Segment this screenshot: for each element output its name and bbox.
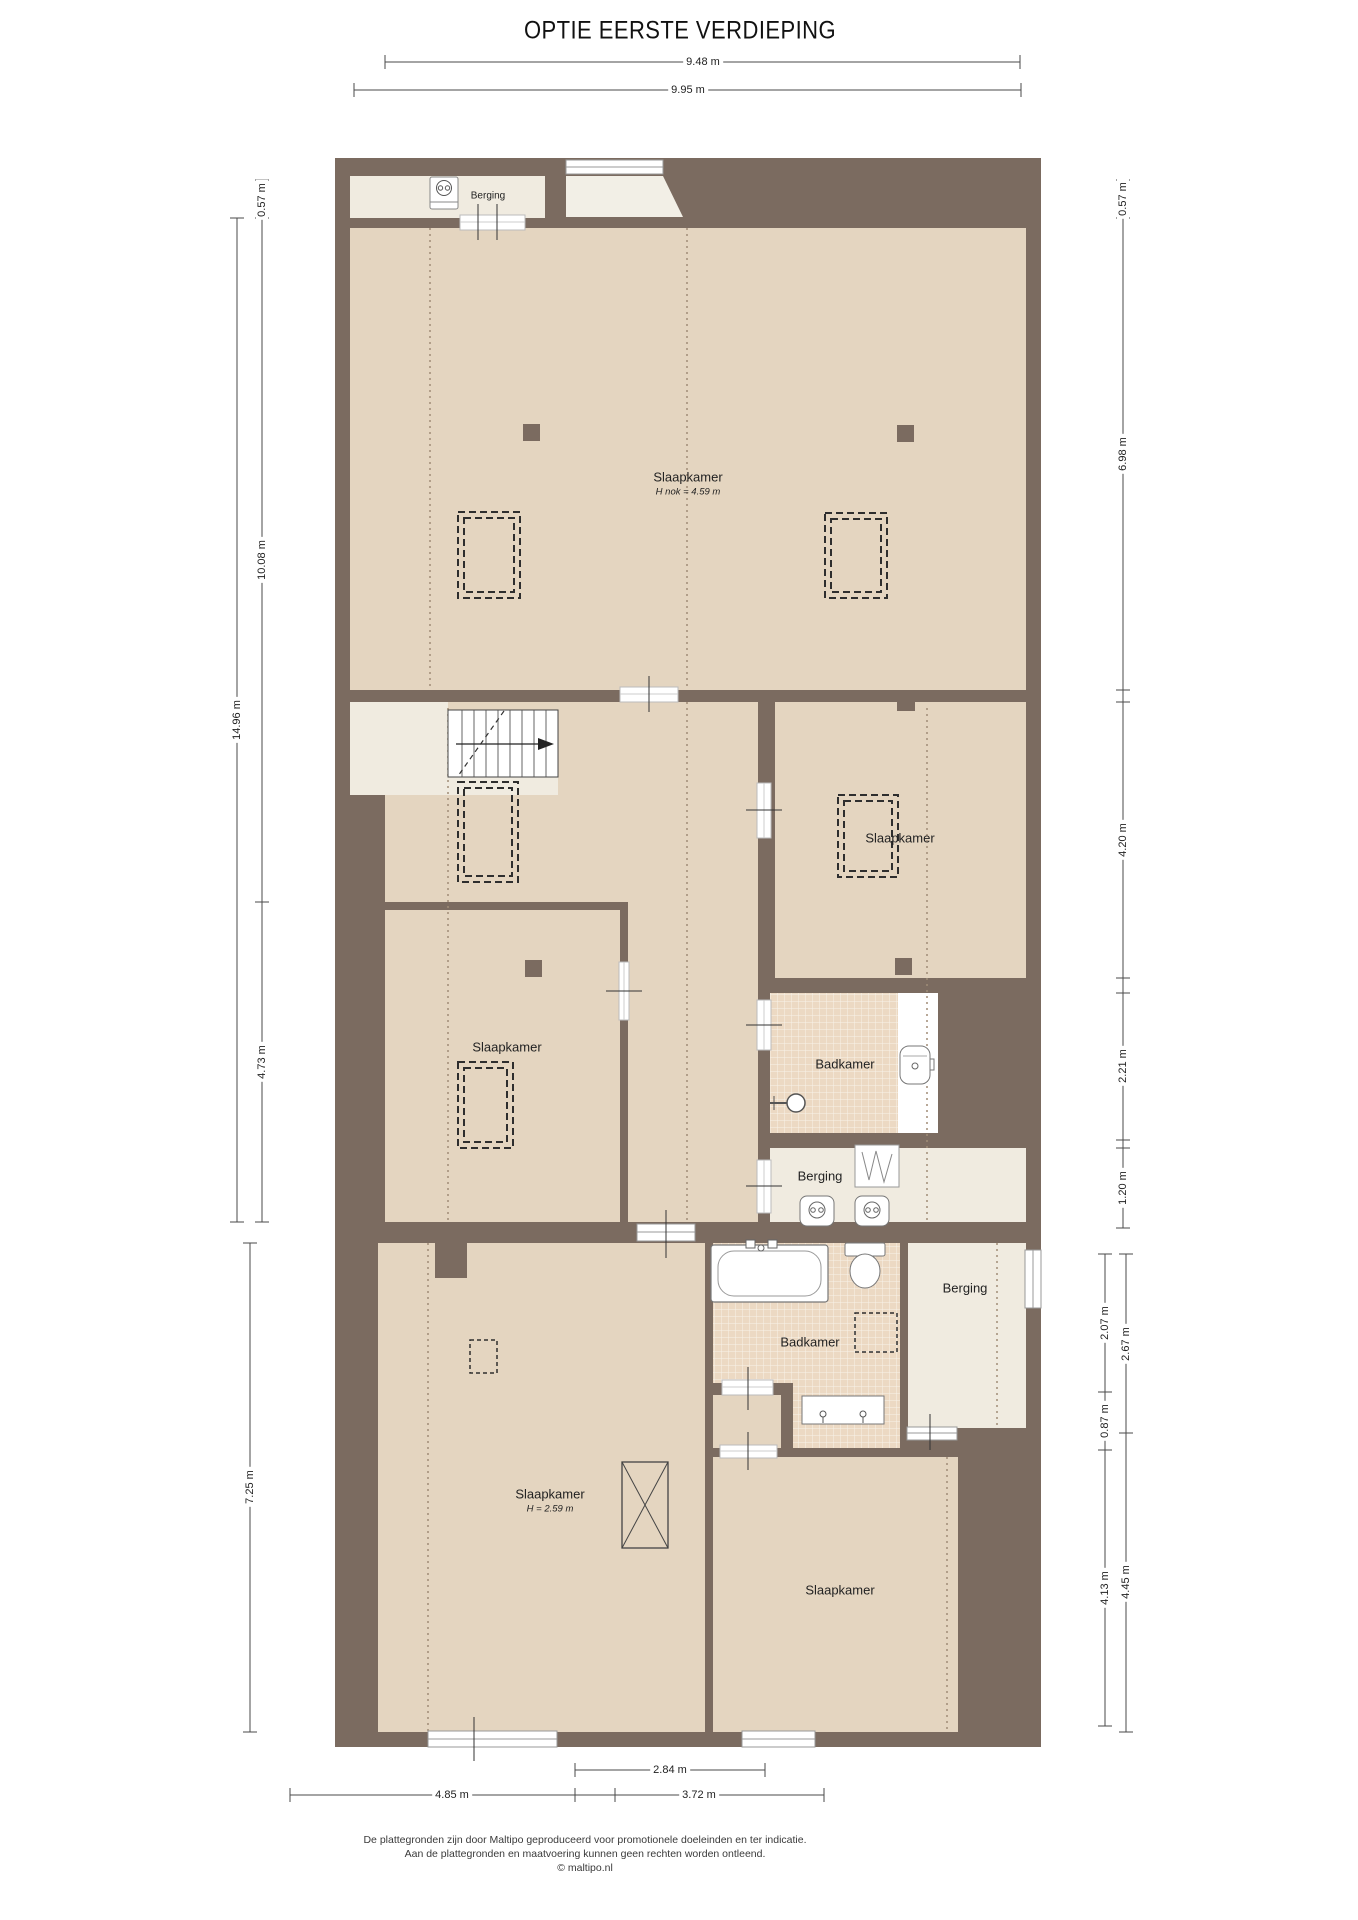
room-label-badkamer-bottom: Badkamer (780, 1335, 839, 1350)
dim-bottom-left: 4.85 m (432, 1789, 472, 1801)
dim-right-bath: 2.21 m (1117, 1046, 1129, 1086)
dim-left-bottom: 7.25 m (244, 1467, 256, 1507)
footer-line-2: Aan de plattegronden en maatvoering kunn… (405, 1848, 766, 1860)
dim-right-267: 2.67 m (1120, 1324, 1132, 1364)
plan-title: OPTIE EERSTE VERDIEPING (524, 17, 836, 46)
room-label-slaapkamer-main: Slaapkamer (653, 470, 722, 485)
stairs-up-icon (448, 710, 558, 777)
dim-right-berging: 1.20 m (1117, 1168, 1129, 1208)
bathtub-icon (711, 1240, 828, 1302)
dim-top-inner: 9.48 m (683, 56, 723, 68)
dim-right-main: 6.98 m (1117, 434, 1129, 474)
room-label-slaapkamer-bottom-left: Slaapkamer (515, 1487, 584, 1502)
double-washbasin-icon (802, 1396, 884, 1424)
dim-left-top: 0.57 m (256, 180, 268, 220)
boiler-icon (430, 177, 458, 209)
room-label-slaapkamer-bottom-right: Slaapkamer (805, 1583, 874, 1598)
footer-line-1: De plattegronden zijn door Maltipo gepro… (363, 1834, 806, 1846)
dim-left-mid: 4.73 m (256, 1042, 268, 1082)
dim-right-445: 4.45 m (1120, 1562, 1132, 1602)
room-label-berging-bottom: Berging (943, 1281, 988, 1296)
dim-right-413: 4.13 m (1099, 1568, 1111, 1608)
room-label-slaapkamer-right: Slaapkamer (865, 831, 934, 846)
dim-bottom-right: 3.72 m (679, 1789, 719, 1801)
washbasin-icon (900, 1046, 934, 1084)
room-label-badkamer-middle: Badkamer (815, 1057, 874, 1072)
room-label-slaapkamer-main-height: H nok = 4.59 m (656, 487, 721, 498)
dim-right-bed: 4.20 m (1117, 820, 1129, 860)
dim-right-087: 0.87 m (1099, 1401, 1111, 1441)
room-label-berging-top: Berging (471, 191, 505, 202)
floors (350, 176, 1026, 1732)
room-label-slaapkamer-middle: Slaapkamer (472, 1040, 541, 1055)
room-label-berging-middle: Berging (798, 1169, 843, 1184)
dim-right-top: 0.57 m (1117, 179, 1129, 219)
shaft-cross-icon (622, 1462, 668, 1548)
room-label-slaapkamer-bottom-left-height: H = 2.59 m (527, 1504, 574, 1515)
dim-bottom-mid: 2.84 m (650, 1764, 690, 1776)
floorplan-canvas: OPTIE EERSTE VERDIEPING Berging Slaapkam… (0, 0, 1358, 1920)
dim-top-outer: 9.95 m (668, 84, 708, 96)
dim-right-207: 2.07 m (1099, 1303, 1111, 1343)
footer-line-3: © maltipo.nl (557, 1862, 613, 1874)
wardrobe-icon (855, 1145, 899, 1187)
dim-left-main: 10.08 m (256, 537, 268, 583)
dim-left-total: 14.96 m (231, 697, 243, 743)
floorplan-drawing (0, 0, 1358, 1920)
